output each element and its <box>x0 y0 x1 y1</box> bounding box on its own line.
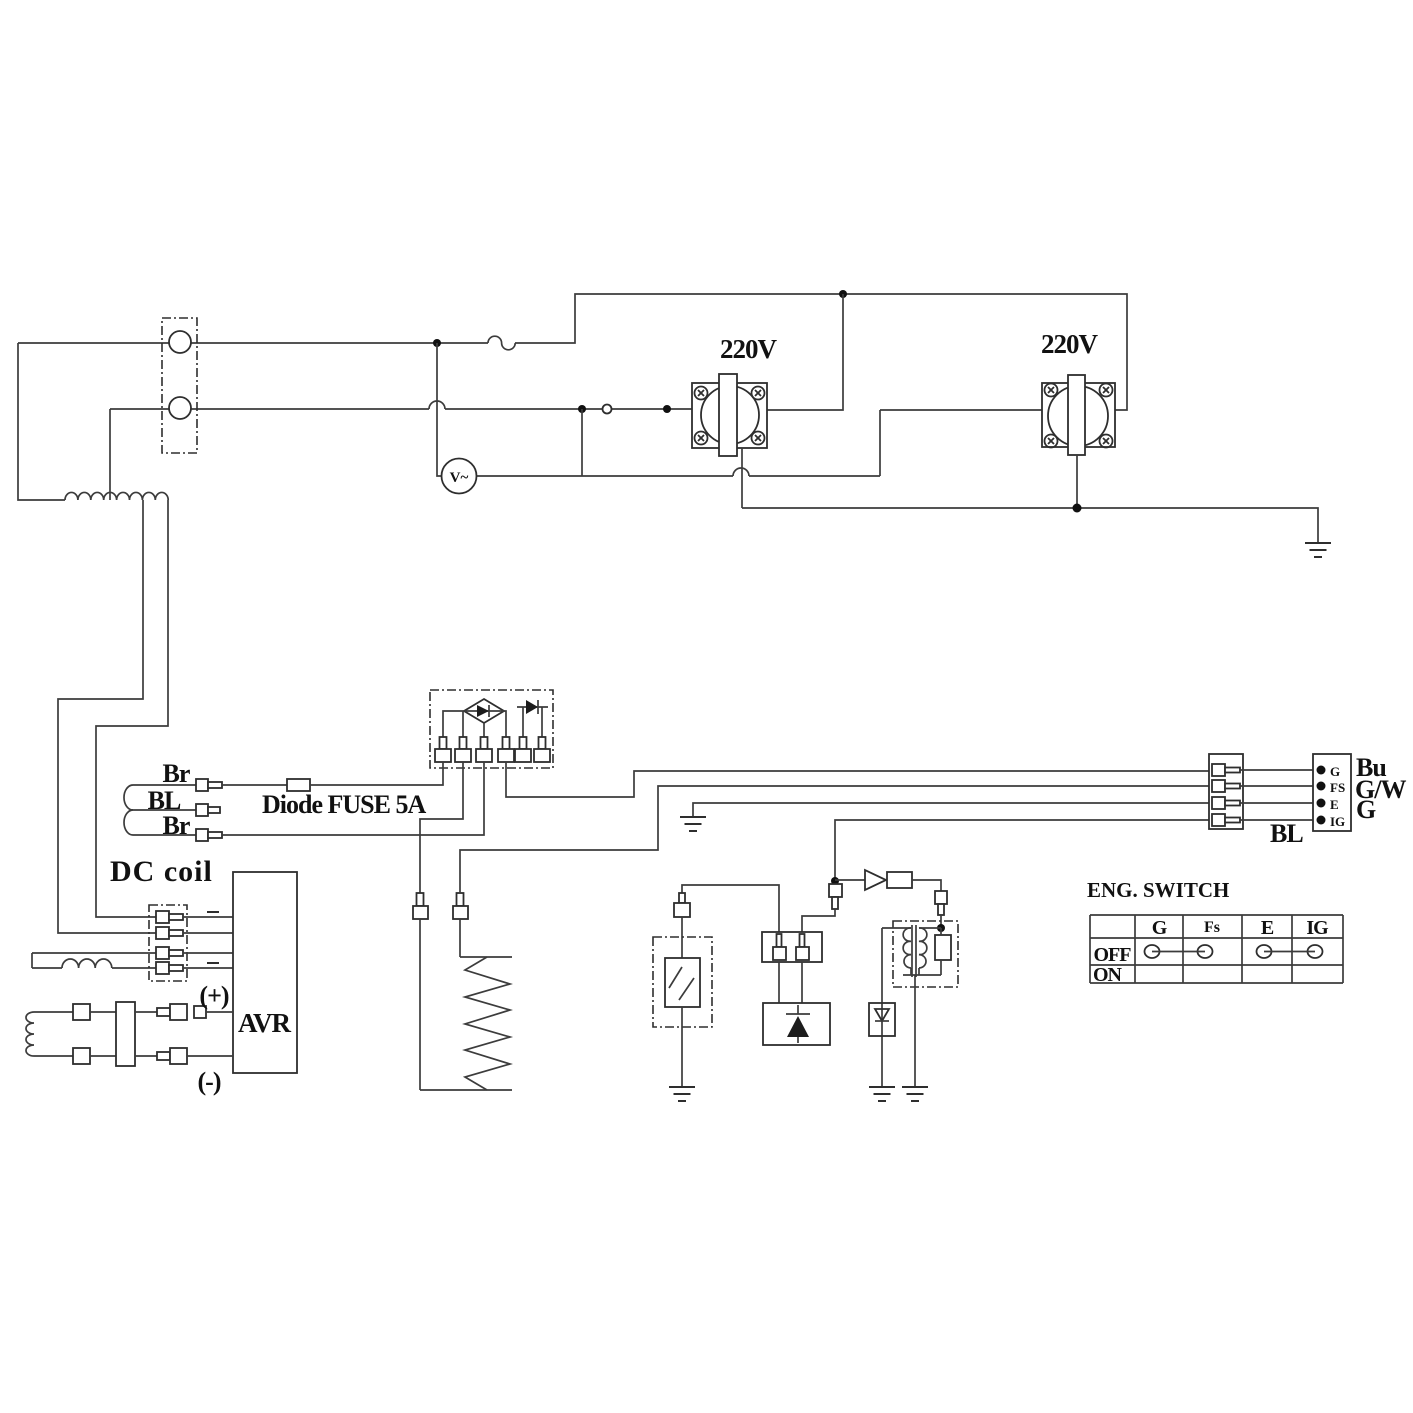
wire-hop <box>733 468 749 476</box>
charge-coil-terminals: Br BL Br <box>124 759 222 841</box>
eng-switch-title: ENG. SWITCH <box>1087 878 1229 902</box>
wire-color-g: G <box>1356 795 1376 824</box>
resistor-zigzag <box>465 957 510 1090</box>
outlet2-label: 220V <box>1041 329 1099 359</box>
ignition-coil-unit <box>882 921 958 1101</box>
pin-label-g: G <box>1330 764 1340 779</box>
wiring-diagram-page: V~ 220V 220V <box>0 0 1413 1413</box>
dc-coil-block: DC coil <box>32 855 213 968</box>
dc-coil-label: DC coil <box>110 855 213 888</box>
oil-sensor-module <box>653 893 712 1101</box>
resistor-winding-block <box>413 893 512 1090</box>
wire-label-br-bottom: Br <box>163 811 190 840</box>
output-wire-neutral <box>110 401 1042 476</box>
switch-contact-g-fs <box>1145 945 1213 958</box>
ground-icon <box>1305 543 1331 557</box>
diode-fuse-wire: Diode FUSE 5A <box>222 762 484 835</box>
avr-box: AVR <box>233 872 297 1073</box>
rectifier-unit <box>430 690 553 768</box>
eng-switch-table: ENG. SWITCH G Fs E IG OFF ON <box>1087 878 1343 986</box>
brush-connector <box>116 1002 135 1066</box>
wire-g <box>506 762 1209 797</box>
stator-main-winding <box>18 343 168 933</box>
fuse-label: Diode FUSE 5A <box>262 790 426 819</box>
secondary-winding <box>919 928 927 968</box>
scr-unit <box>763 1003 830 1045</box>
ground-icon <box>902 1087 928 1101</box>
diode-icon <box>865 870 886 890</box>
ignition-diode-branch <box>835 870 947 928</box>
outlet1-label: 220V <box>720 334 778 364</box>
pin-label-ig: IG <box>1330 814 1345 829</box>
stop-switch-connector <box>682 884 842 1003</box>
harness-connector-left <box>1209 754 1313 829</box>
col-header-g: G <box>1152 917 1168 939</box>
ground-icon <box>869 1087 895 1101</box>
minus-label: (-) <box>198 1067 221 1096</box>
col-header-ig: IG <box>1306 917 1329 939</box>
outlet-220v-1: 220V <box>692 334 778 508</box>
outlet-220v-2: 220V <box>1041 329 1115 508</box>
voltmeter: V~ <box>437 343 880 494</box>
rotor-field-winding: (+) (-) <box>26 981 233 1096</box>
core-lines <box>912 925 916 977</box>
resistor-icon <box>935 935 951 960</box>
generator-wiring-diagram: V~ 220V 220V <box>0 0 1413 1413</box>
wire-color-bl: BL <box>1270 819 1303 848</box>
wire-label-br-top: Br <box>163 759 190 788</box>
primary-winding <box>903 928 911 968</box>
ground-icon <box>680 817 706 831</box>
row-label-on: ON <box>1093 964 1123 986</box>
switch-contact-e-ig <box>1257 945 1323 958</box>
connection-point <box>603 405 612 414</box>
sensor-slashes <box>669 967 694 1000</box>
col-header-e: E <box>1261 917 1274 939</box>
circuit-breaker-icon <box>488 336 515 350</box>
wire-rect-dc <box>420 762 463 893</box>
row-label-off: OFF <box>1094 944 1132 966</box>
neutral-ground-bus <box>742 504 1331 558</box>
wire-e-ground <box>680 803 1209 831</box>
zener-branch <box>869 928 895 1101</box>
col-header-fs: Fs <box>1204 919 1220 936</box>
harness-connector-right: G FS E IG <box>1313 754 1351 831</box>
avr-label: AVR <box>238 1008 292 1038</box>
pin-label-e: E <box>1330 797 1339 812</box>
ground-icon <box>669 1087 695 1101</box>
plus-label: (+) <box>199 981 228 1010</box>
rectifier-pins <box>435 737 550 762</box>
terminal-block-breaker <box>162 318 197 453</box>
scr-diode-icon <box>787 1016 809 1037</box>
avr-connector <box>149 905 233 981</box>
pin-label-fs: FS <box>1330 780 1345 795</box>
voltmeter-label: V~ <box>450 470 469 486</box>
avr-connector-lugs <box>156 911 183 974</box>
